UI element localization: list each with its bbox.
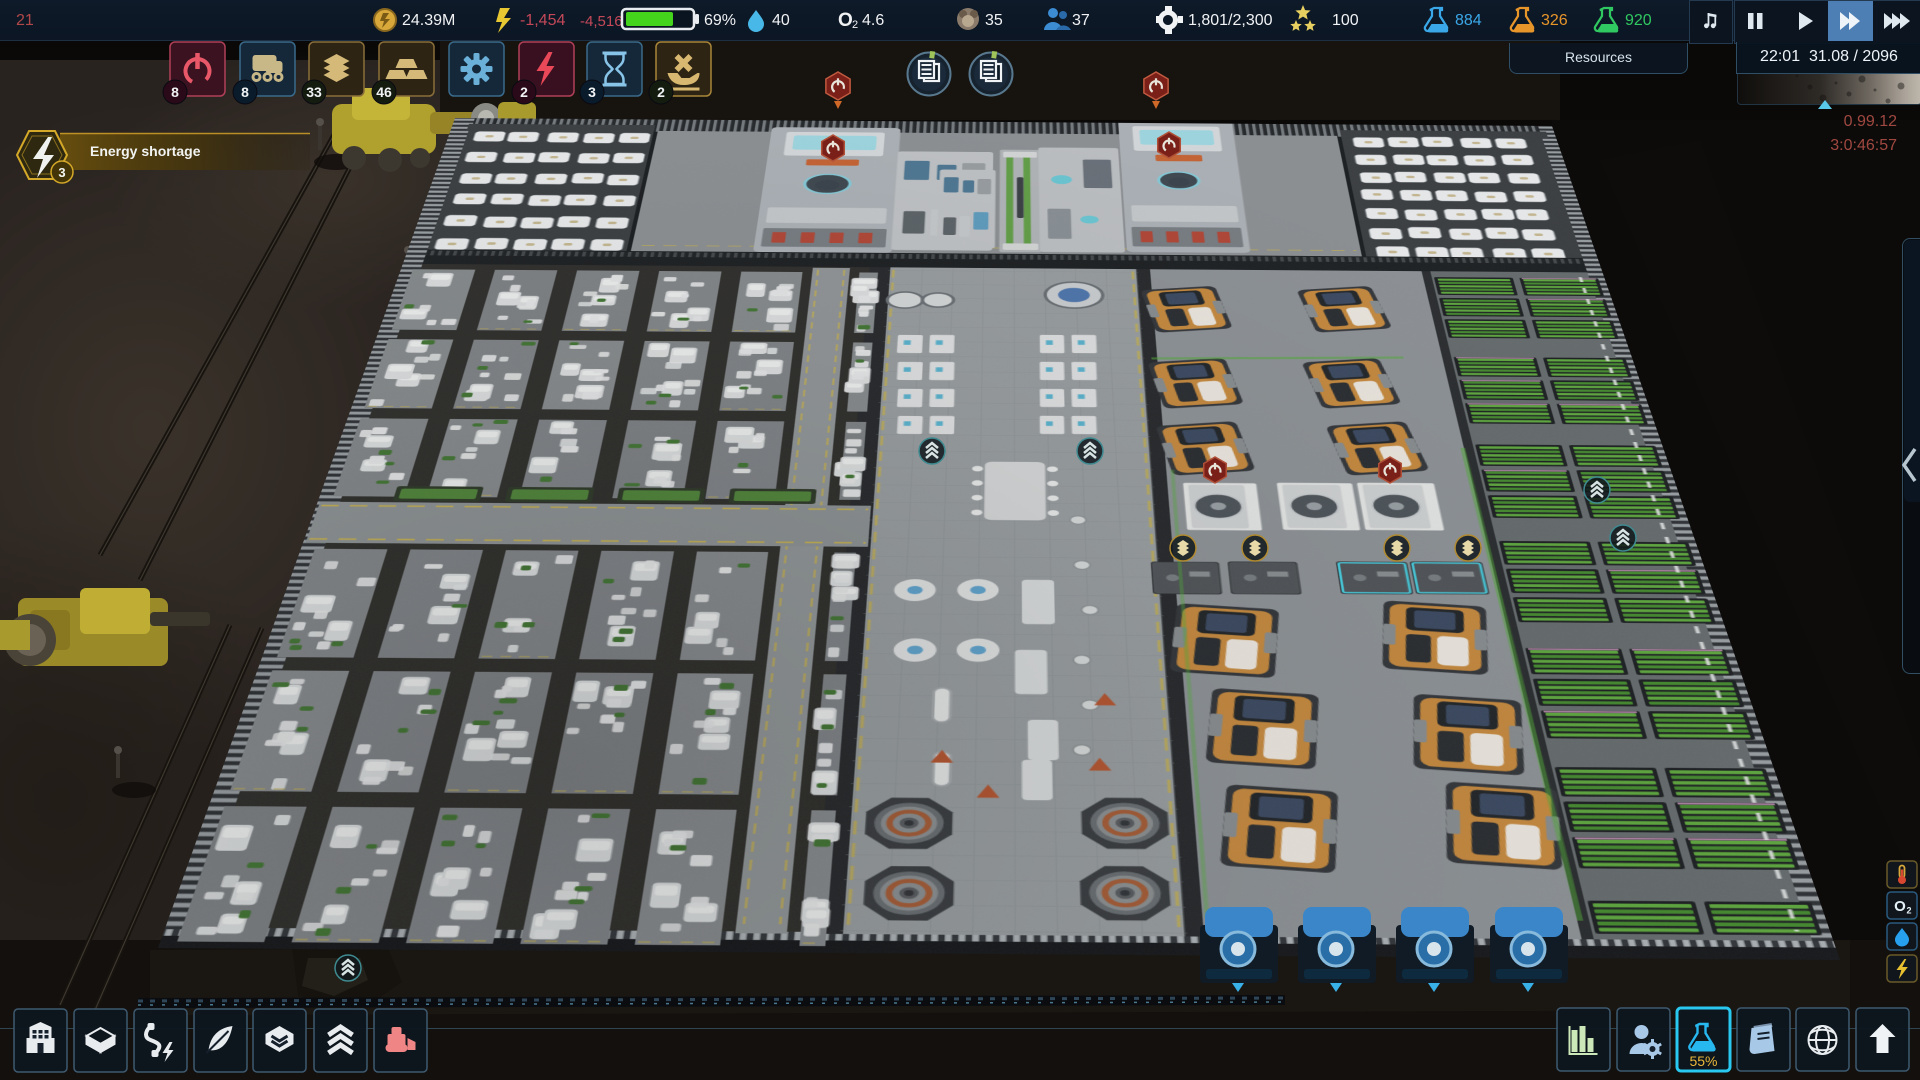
svg-text:O: O (1894, 898, 1906, 915)
svg-text:2: 2 (1906, 906, 1911, 916)
